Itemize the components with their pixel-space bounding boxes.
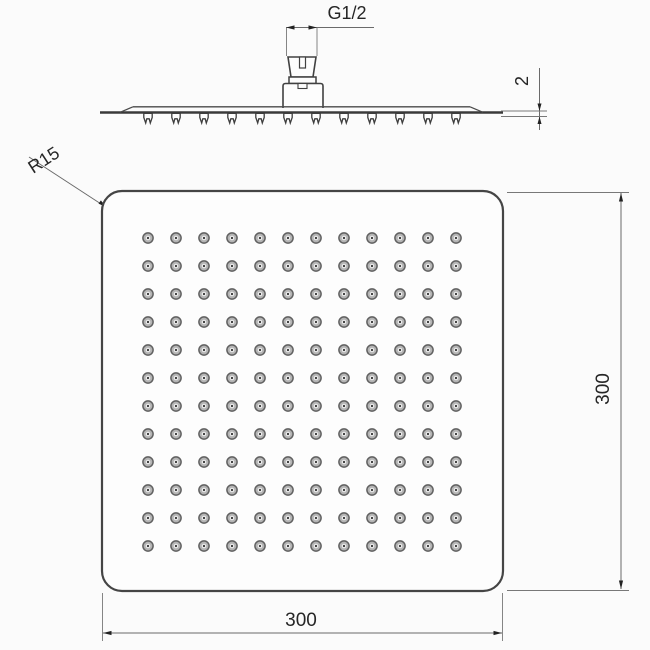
nozzle-dot: [255, 261, 265, 271]
nozzle-dot: [255, 429, 265, 439]
arrow-down-icon: [538, 104, 542, 112]
side-nozzle: [424, 113, 432, 123]
nozzle-dot: [171, 401, 181, 411]
nozzle-dot: [367, 429, 377, 439]
nozzle-dot: [451, 513, 461, 523]
nozzle-dot: [171, 261, 181, 271]
side-nozzle: [312, 113, 320, 123]
width-dimension: 300: [103, 593, 503, 641]
nozzle-dot: [395, 401, 405, 411]
nozzle-dot: [255, 513, 265, 523]
nozzle-dot: [171, 345, 181, 355]
nozzle-dot: [339, 485, 349, 495]
nozzle-dot: [451, 429, 461, 439]
nozzle-dot: [255, 233, 265, 243]
nozzle-dot: [227, 485, 237, 495]
nozzle-dot: [311, 345, 321, 355]
nozzle-dot: [395, 541, 405, 551]
nozzle-dot: [255, 373, 265, 383]
nozzle-dot: [199, 485, 209, 495]
side-nozzle: [452, 113, 460, 123]
side-nozzle: [228, 113, 236, 123]
width-label: 300: [285, 610, 317, 631]
arrow-right-icon: [494, 631, 503, 635]
nozzle-dot: [451, 345, 461, 355]
nozzle-dot: [339, 429, 349, 439]
nozzle-dot: [143, 373, 153, 383]
side-nozzle: [172, 113, 180, 123]
nozzle-dot: [255, 457, 265, 467]
nozzle-dot: [199, 345, 209, 355]
nozzle-dot: [367, 261, 377, 271]
nozzle-dot: [423, 289, 433, 299]
nozzle-dot: [423, 317, 433, 327]
nozzle-dot: [339, 401, 349, 411]
nozzle-dot: [395, 317, 405, 327]
side-nozzle: [340, 113, 348, 123]
nozzle-dot: [283, 541, 293, 551]
base-notch: [298, 84, 307, 89]
nozzle-dot: [367, 373, 377, 383]
nozzle-dot: [143, 513, 153, 523]
nozzle-dot: [227, 401, 237, 411]
nozzle-dot: [143, 289, 153, 299]
side-nozzle-row: [144, 113, 460, 123]
nozzle-dot: [143, 429, 153, 439]
nozzle-dot: [423, 485, 433, 495]
nozzle-dot: [171, 289, 181, 299]
nozzle-dot: [339, 513, 349, 523]
nozzle-dot: [171, 541, 181, 551]
nozzle-dot: [311, 233, 321, 243]
nozzle-dot: [339, 261, 349, 271]
nozzle-dot: [143, 317, 153, 327]
nozzle-dot: [311, 289, 321, 299]
nozzle-dot: [423, 513, 433, 523]
nozzle-dot: [171, 317, 181, 327]
nozzle-dot: [451, 541, 461, 551]
side-nozzle: [256, 113, 264, 123]
shower-plate-face: [102, 191, 503, 591]
nozzle-dot: [339, 345, 349, 355]
nozzle-dot: [227, 373, 237, 383]
nozzle-dot: [395, 429, 405, 439]
nozzle-dot: [227, 233, 237, 243]
nozzle-dot: [171, 233, 181, 243]
nozzle-dot: [255, 541, 265, 551]
nozzle-dot: [171, 429, 181, 439]
plate-profile: [100, 107, 503, 123]
nozzle-dot: [255, 289, 265, 299]
nozzle-dot: [283, 261, 293, 271]
nozzle-dot: [227, 289, 237, 299]
nozzle-dot: [255, 485, 265, 495]
nozzle-dot: [451, 261, 461, 271]
thread-connector: [283, 57, 323, 108]
nozzle-dot: [395, 289, 405, 299]
nozzle-dot: [283, 317, 293, 327]
nozzle-dot: [311, 429, 321, 439]
nozzle-dot: [199, 373, 209, 383]
side-nozzle: [284, 113, 292, 123]
arrow-left-icon: [286, 25, 295, 29]
nozzle-dot: [227, 457, 237, 467]
nozzle-dot: [311, 541, 321, 551]
side-nozzle: [396, 113, 404, 123]
nozzle-dot: [423, 261, 433, 271]
nozzle-dot: [367, 457, 377, 467]
nozzle-dot: [395, 485, 405, 495]
nozzle-dot: [143, 541, 153, 551]
nozzle-dot: [311, 457, 321, 467]
nozzle-dot: [367, 541, 377, 551]
nozzle-dot: [255, 317, 265, 327]
arrow-right-icon: [309, 25, 318, 29]
nozzle-dot: [423, 345, 433, 355]
arrow-left-icon: [103, 631, 112, 635]
nozzle-dot: [339, 317, 349, 327]
nozzle-dot: [283, 457, 293, 467]
nozzle-dot: [367, 401, 377, 411]
nozzle-dot: [367, 233, 377, 243]
nozzle-dot: [143, 261, 153, 271]
side-view: G1/2 2: [100, 3, 547, 130]
nozzle-dot: [283, 289, 293, 299]
nozzle-dot: [423, 457, 433, 467]
technical-drawing: G1/2 2: [0, 0, 650, 650]
nozzle-dot: [311, 317, 321, 327]
nozzle-dot: [283, 513, 293, 523]
nozzle-dot: [283, 373, 293, 383]
nozzle-dot: [339, 541, 349, 551]
nozzle-dot: [395, 261, 405, 271]
nozzle-dot: [283, 233, 293, 243]
arrow-up-icon: [538, 117, 542, 125]
side-nozzle: [200, 113, 208, 123]
nozzle-dot: [227, 513, 237, 523]
side-nozzle: [368, 113, 376, 123]
nozzle-dot: [255, 345, 265, 355]
nozzle-dot: [199, 289, 209, 299]
nozzle-dot: [367, 513, 377, 523]
nozzle-dot: [339, 233, 349, 243]
nozzle-dot: [283, 401, 293, 411]
nozzle-dot: [311, 401, 321, 411]
nozzle-dot: [339, 289, 349, 299]
nozzle-dot: [199, 233, 209, 243]
arrow-up-icon: [619, 193, 623, 202]
nozzle-dot: [367, 485, 377, 495]
nozzle-dot: [199, 429, 209, 439]
nozzle-dot: [283, 429, 293, 439]
nozzle-dot: [395, 373, 405, 383]
nozzle-dot: [171, 373, 181, 383]
thickness-label: 2: [512, 76, 532, 86]
nozzle-dot: [283, 485, 293, 495]
nozzle-dot: [199, 513, 209, 523]
nozzle-dot: [339, 373, 349, 383]
nozzle-dot: [451, 373, 461, 383]
height-label: 300: [593, 373, 614, 405]
nozzle-dot: [283, 345, 293, 355]
nozzle-dot: [199, 541, 209, 551]
nozzle-dot: [199, 457, 209, 467]
nozzle-dot: [227, 261, 237, 271]
nozzle-dot: [199, 261, 209, 271]
nozzle-dot: [143, 233, 153, 243]
plan-view: R15 300 300: [24, 143, 629, 641]
nipple-slot: [300, 57, 306, 68]
nozzle-dot: [367, 289, 377, 299]
nozzle-dot: [395, 233, 405, 243]
nozzle-dot: [143, 401, 153, 411]
corner-radius-label: R15: [24, 143, 63, 178]
arrow-down-icon: [619, 581, 623, 590]
nozzle-dot: [423, 429, 433, 439]
nozzle-dot: [423, 373, 433, 383]
nozzle-dot: [423, 233, 433, 243]
thread-size-label: G1/2: [327, 3, 366, 23]
nozzle-dot: [451, 289, 461, 299]
nozzle-dot: [311, 513, 321, 523]
connector-collar: [289, 77, 316, 84]
nozzle-dot: [227, 317, 237, 327]
side-nozzle: [144, 113, 152, 123]
nozzle-dot: [311, 485, 321, 495]
nozzle-dot: [171, 513, 181, 523]
nozzle-dot: [395, 345, 405, 355]
nozzle-dot: [451, 485, 461, 495]
nozzle-dot: [199, 401, 209, 411]
nozzle-dot: [143, 485, 153, 495]
thread-dimension: G1/2: [286, 3, 374, 56]
height-dimension: 300: [507, 193, 629, 591]
nozzle-dot: [395, 513, 405, 523]
nozzle-dot: [227, 429, 237, 439]
nozzle-dot: [171, 485, 181, 495]
nozzle-dot: [143, 457, 153, 467]
nozzle-dot: [143, 345, 153, 355]
nozzle-dot: [311, 373, 321, 383]
thickness-dimension: 2: [501, 68, 547, 130]
drawing-canvas: G1/2 2: [0, 0, 650, 650]
nozzle-dot: [367, 317, 377, 327]
nozzle-dot: [227, 541, 237, 551]
nozzle-dot: [255, 401, 265, 411]
nozzle-dot: [451, 457, 461, 467]
nozzle-dot: [199, 317, 209, 327]
nozzle-dot: [451, 317, 461, 327]
nozzle-dot: [171, 457, 181, 467]
nozzle-dot: [339, 457, 349, 467]
nozzle-dot: [451, 401, 461, 411]
nozzle-dot: [227, 345, 237, 355]
nozzle-dot: [367, 345, 377, 355]
nozzle-dot: [395, 457, 405, 467]
nozzle-dot: [311, 261, 321, 271]
nozzle-dot: [423, 541, 433, 551]
nozzle-dot: [423, 401, 433, 411]
nozzle-dot: [451, 233, 461, 243]
